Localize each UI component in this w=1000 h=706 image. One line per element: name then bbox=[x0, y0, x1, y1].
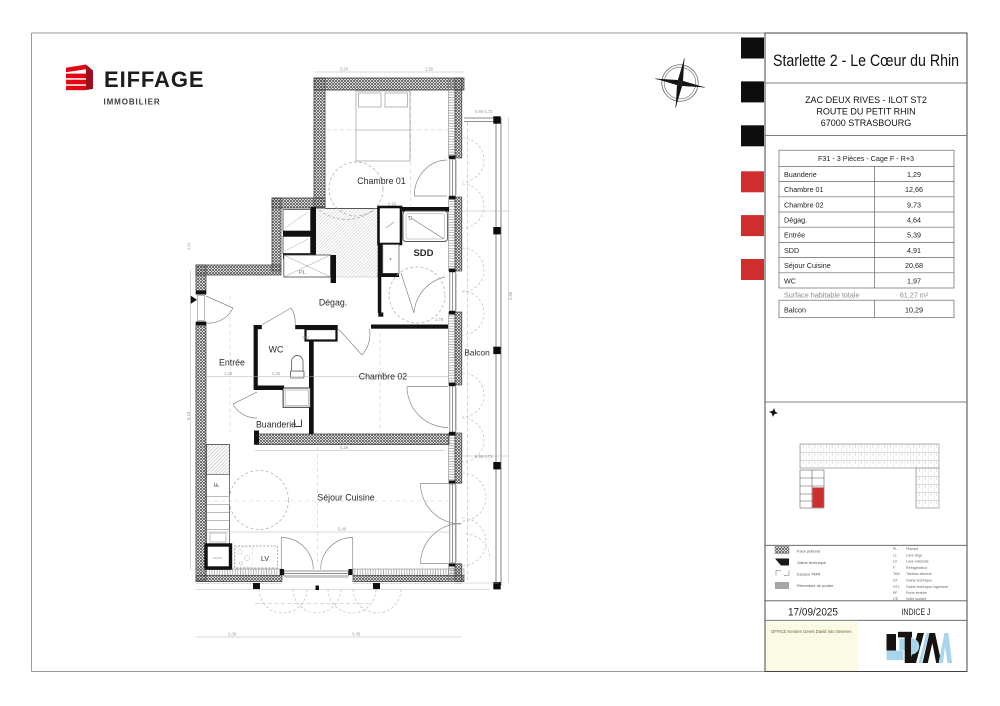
svg-text:Dégag.: Dégag. bbox=[784, 216, 807, 225]
svg-text:12,66: 12,66 bbox=[905, 185, 923, 194]
svg-text:Entrée: Entrée bbox=[219, 358, 245, 368]
svg-text:IMMOBILIER: IMMOBILIER bbox=[104, 98, 161, 107]
svg-text:OFFICE Kersten Geers David Van: OFFICE Kersten Geers David Van Severen bbox=[771, 629, 852, 634]
svg-text:INDICE J: INDICE J bbox=[902, 607, 931, 618]
svg-text:PL: PL bbox=[893, 547, 897, 551]
svg-text:Balcon: Balcon bbox=[784, 305, 806, 314]
svg-text:0,96 0,73: 0,96 0,73 bbox=[475, 109, 493, 114]
svg-text:3,70: 3,70 bbox=[319, 175, 323, 182]
svg-text:Retombée de poutre: Retombée de poutre bbox=[797, 583, 834, 588]
svg-text:Tableau abonné: Tableau abonné bbox=[906, 572, 932, 576]
svg-text:Lave linge: Lave linge bbox=[906, 553, 922, 557]
svg-text:5,28: 5,28 bbox=[340, 445, 349, 450]
svg-text:4,64: 4,64 bbox=[907, 216, 921, 225]
svg-text:1,97: 1,97 bbox=[907, 276, 921, 285]
svg-text:Starlette 2 - Le Cœur du Rhin: Starlette 2 - Le Cœur du Rhin bbox=[773, 52, 959, 70]
svg-text:2,88: 2,88 bbox=[508, 291, 513, 300]
svg-text:4,91: 4,91 bbox=[907, 246, 921, 255]
svg-text:1,55: 1,55 bbox=[425, 67, 434, 72]
svg-text:F31 - 3 Pièces - Cage F - R+3: F31 - 3 Pièces - Cage F - R+3 bbox=[818, 154, 914, 163]
svg-text:5,18: 5,18 bbox=[186, 411, 191, 420]
svg-text:Buanderie: Buanderie bbox=[784, 170, 817, 179]
svg-text:1,29: 1,29 bbox=[907, 170, 921, 179]
svg-text:1,78: 1,78 bbox=[435, 317, 444, 322]
svg-text:10,29: 10,29 bbox=[905, 305, 923, 314]
svg-text:Chambre 02: Chambre 02 bbox=[784, 200, 824, 209]
svg-text:Séjour Cuisine: Séjour Cuisine bbox=[317, 493, 374, 503]
svg-text:WC: WC bbox=[784, 276, 796, 285]
svg-text:Chambre 01: Chambre 01 bbox=[357, 176, 406, 186]
svg-text:PF: PF bbox=[893, 591, 898, 595]
svg-text:20,68: 20,68 bbox=[905, 261, 923, 270]
svg-text:EIFFAGE: EIFFAGE bbox=[104, 67, 204, 92]
svg-text:2,08: 2,08 bbox=[228, 632, 237, 637]
svg-text:9,73: 9,73 bbox=[907, 200, 921, 209]
svg-text:3,45: 3,45 bbox=[352, 632, 361, 637]
svg-text:Surface habitable totale: Surface habitable totale bbox=[784, 291, 860, 300]
svg-text:3,20: 3,20 bbox=[340, 67, 349, 72]
svg-text:1,28: 1,28 bbox=[224, 371, 233, 376]
svg-text:0,93: 0,93 bbox=[302, 336, 309, 340]
svg-text:Balcon: Balcon bbox=[464, 348, 490, 358]
svg-text:SDD: SDD bbox=[784, 246, 799, 255]
svg-text:Gaine technique: Gaine technique bbox=[906, 579, 932, 583]
svg-text:F: F bbox=[214, 483, 221, 487]
svg-text:Buanderie: Buanderie bbox=[256, 420, 296, 430]
svg-text:Placard: Placard bbox=[906, 547, 918, 551]
svg-text:WC: WC bbox=[269, 345, 284, 355]
svg-text:Faux plafond: Faux plafond bbox=[797, 549, 820, 554]
svg-text:Chambre 02: Chambre 02 bbox=[359, 372, 408, 382]
svg-text:67000 STRASBOURG: 67000 STRASBOURG bbox=[821, 118, 912, 128]
svg-text:LL: LL bbox=[893, 553, 897, 557]
svg-text:0,96 0,73: 0,96 0,73 bbox=[475, 454, 493, 459]
svg-text:ZAC DEUX RIVES - ILOT ST2: ZAC DEUX RIVES - ILOT ST2 bbox=[805, 95, 927, 105]
svg-text:Entrée: Entrée bbox=[784, 231, 805, 240]
svg-text:Dégag.: Dégag. bbox=[319, 298, 347, 308]
svg-text:17/09/2025: 17/09/2025 bbox=[788, 607, 838, 619]
svg-text:Lave vaisselle: Lave vaisselle bbox=[906, 560, 929, 564]
svg-text:GTL: GTL bbox=[893, 585, 900, 589]
svg-text:Chambre 01: Chambre 01 bbox=[784, 185, 824, 194]
svg-text:5,40: 5,40 bbox=[338, 526, 347, 531]
svg-text:TAB: TAB bbox=[893, 572, 900, 576]
svg-text:2,35: 2,35 bbox=[272, 371, 281, 376]
svg-text:PL: PL bbox=[299, 270, 306, 276]
svg-text:GT: GT bbox=[893, 579, 899, 583]
svg-text:0,93: 0,93 bbox=[388, 202, 397, 207]
svg-text:LV: LV bbox=[261, 556, 269, 563]
svg-text:Espace PMR: Espace PMR bbox=[797, 572, 820, 577]
svg-text:5,39: 5,39 bbox=[907, 231, 921, 240]
svg-text:LV: LV bbox=[893, 560, 898, 564]
svg-text:Gaine technique: Gaine technique bbox=[797, 560, 827, 565]
svg-text:Porte fenêtre: Porte fenêtre bbox=[906, 591, 927, 595]
svg-text:61,27 m²: 61,27 m² bbox=[900, 291, 929, 300]
svg-text:2,61: 2,61 bbox=[186, 241, 191, 250]
svg-text:Séjour Cuisine: Séjour Cuisine bbox=[784, 261, 831, 270]
svg-text:Réfrigérateur: Réfrigérateur bbox=[906, 566, 928, 570]
svg-text:SDD: SDD bbox=[413, 248, 433, 259]
svg-text:ROUTE DU PETIT RHIN: ROUTE DU PETIT RHIN bbox=[816, 107, 915, 117]
svg-text:Gaine technique logement: Gaine technique logement bbox=[906, 585, 948, 589]
